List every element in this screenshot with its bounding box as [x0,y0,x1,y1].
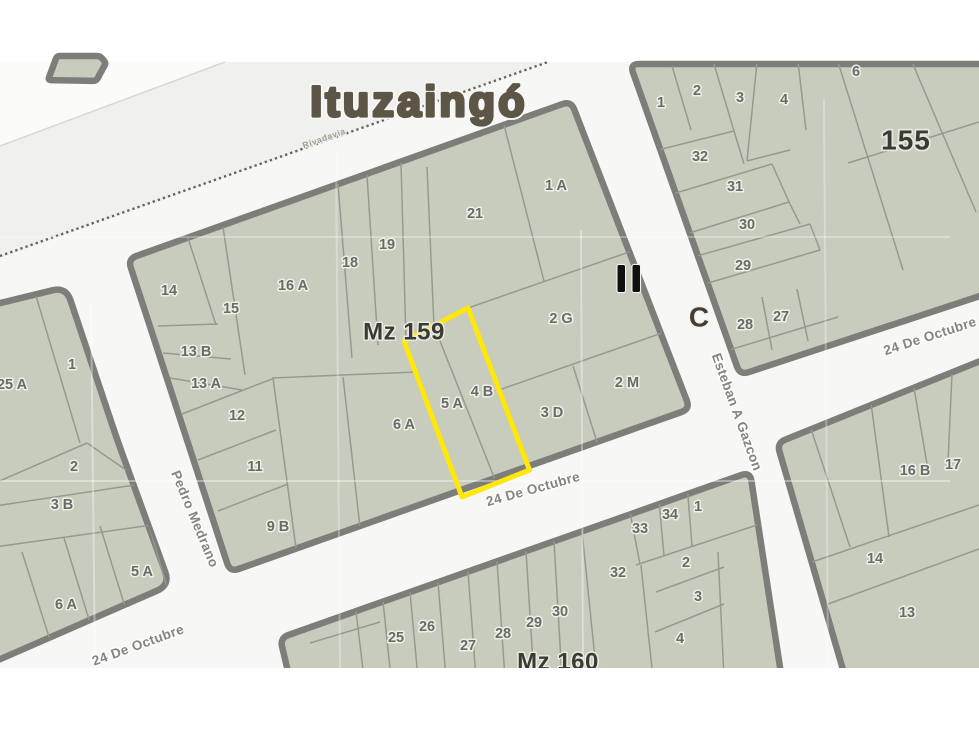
svg-text:3 B: 3 B [51,497,74,513]
svg-text:4 B: 4 B [471,384,494,400]
svg-text:32: 32 [692,149,708,165]
svg-text:25 A: 25 A [0,377,28,393]
svg-text:3 D: 3 D [541,405,564,421]
svg-text:5 A: 5 A [441,396,464,412]
svg-text:3: 3 [694,589,702,605]
svg-text:14: 14 [867,551,883,567]
svg-text:13 A: 13 A [191,376,222,392]
svg-text:16 B: 16 B [900,463,931,479]
svg-text:15: 15 [223,301,239,317]
svg-text:34: 34 [662,507,678,523]
svg-text:2 M: 2 M [615,375,639,391]
svg-text:19: 19 [379,237,395,253]
svg-text:26: 26 [419,619,435,635]
svg-text:29: 29 [735,258,751,274]
svg-text:28: 28 [495,626,511,642]
svg-text:6: 6 [852,64,860,80]
svg-text:4: 4 [780,92,788,108]
svg-text:32: 32 [610,565,626,581]
svg-text:2 G: 2 G [549,311,572,327]
svg-text:16 A: 16 A [278,278,309,294]
svg-text:21: 21 [467,206,483,222]
svg-text:2: 2 [70,459,78,475]
svg-text:31: 31 [727,179,743,195]
svg-text:27: 27 [773,309,789,325]
svg-text:6 A: 6 A [55,597,78,613]
svg-text:2: 2 [693,83,701,99]
svg-text:27: 27 [460,638,476,654]
svg-text:13 B: 13 B [181,344,212,360]
svg-text:3: 3 [736,90,744,106]
svg-text:28: 28 [737,317,753,333]
svg-text:Mz 159: Mz 159 [363,319,445,346]
svg-text:5 A: 5 A [131,564,154,580]
svg-text:6 A: 6 A [393,417,416,433]
svg-text:11: 11 [247,459,262,475]
svg-text:30: 30 [552,604,568,620]
svg-text:2: 2 [682,555,690,571]
svg-text:13: 13 [899,605,915,621]
svg-text:155: 155 [881,125,931,156]
svg-text:33: 33 [632,521,648,537]
svg-text:1 A: 1 A [545,178,568,194]
svg-text:1: 1 [657,95,665,111]
svg-text:14: 14 [161,283,177,299]
svg-text:25: 25 [388,630,404,646]
svg-text:29: 29 [526,615,542,631]
svg-text:C: C [689,302,709,333]
svg-text:18: 18 [342,255,358,271]
svg-text:Ituzaingó: Ituzaingó [310,78,528,126]
svg-text:4: 4 [676,631,684,647]
svg-text:30: 30 [739,217,755,233]
svg-text:17: 17 [945,457,961,473]
svg-text:12: 12 [229,408,245,424]
svg-text:1: 1 [68,357,76,373]
svg-text:9 B: 9 B [267,519,290,535]
svg-text:1: 1 [694,499,702,515]
